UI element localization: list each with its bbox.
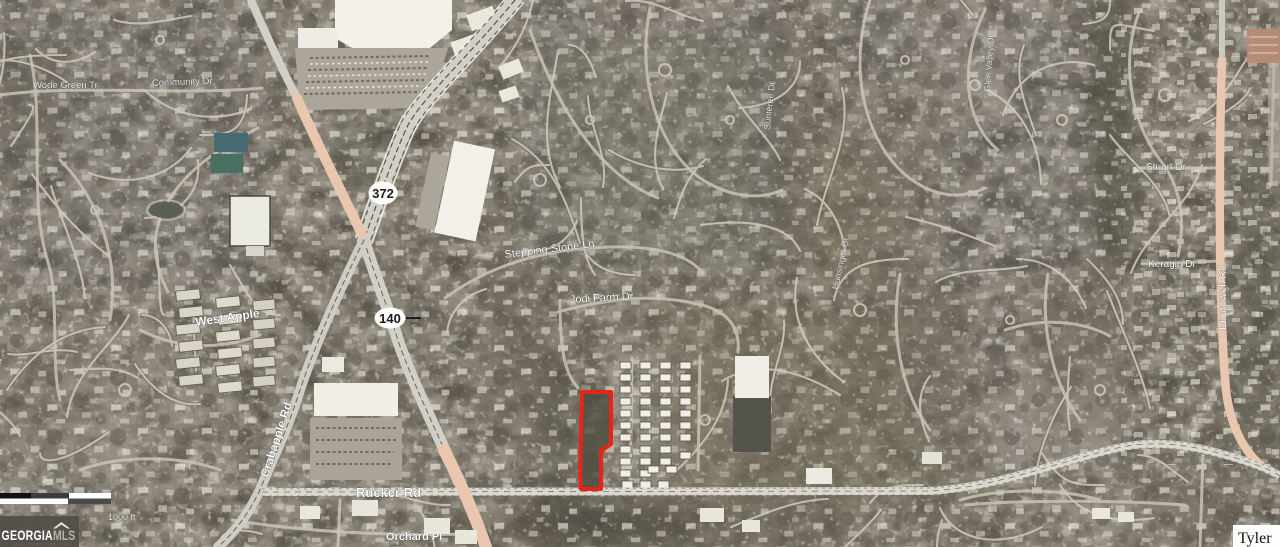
svg-text:1000 ft: 1000 ft <box>108 512 136 522</box>
svg-text:Stuart Dr: Stuart Dr <box>1146 162 1187 173</box>
svg-text:MLS: MLS <box>53 528 75 544</box>
svg-text:Tyler: Tyler <box>1238 530 1272 547</box>
svg-text:REAL ESTATE SERVICES: REAL ESTATE SERVICES <box>14 543 71 547</box>
svg-text:GEORGIA: GEORGIA <box>2 528 53 544</box>
svg-text:372: 372 <box>372 186 394 201</box>
svg-text:Wode Green Tr: Wode Green Tr <box>33 80 98 91</box>
svg-text:Keragin Dr: Keragin Dr <box>1148 259 1196 270</box>
svg-text:Community Dr: Community Dr <box>152 76 213 89</box>
svg-text:140: 140 <box>379 311 401 326</box>
svg-text:Rucker Rd: Rucker Rd <box>356 485 421 500</box>
svg-text:Broadwell Rd: Broadwell Rd <box>1217 265 1229 330</box>
